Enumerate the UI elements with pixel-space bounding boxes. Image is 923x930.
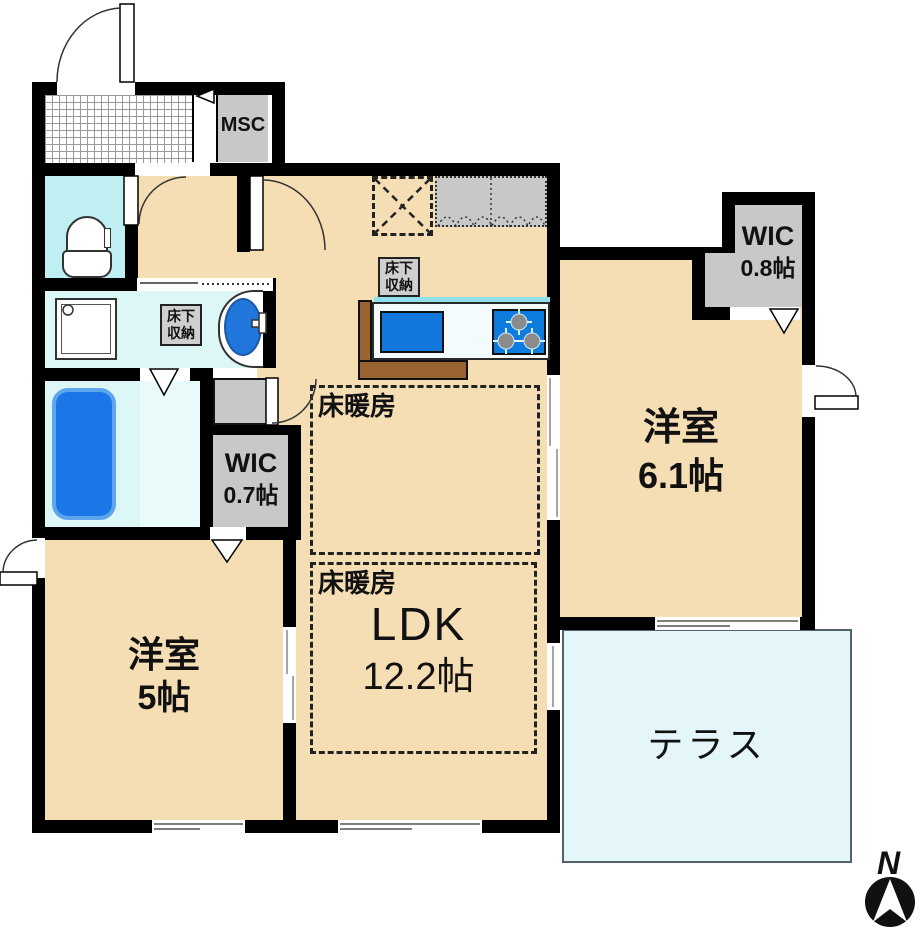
msc-label: MSC <box>221 114 265 137</box>
compass-circle <box>865 877 915 927</box>
bedroom-right-size: 6.1帖 <box>560 453 802 498</box>
wall <box>263 291 276 368</box>
wall <box>125 225 138 278</box>
ldk-south-window <box>338 820 482 833</box>
entrance-door-arc <box>57 8 120 82</box>
bedroom-left-label: 洋室 5帖 <box>45 632 283 720</box>
wic-right-size: 0.8帖 <box>718 254 818 283</box>
bedroom-ldk-sliding-door <box>283 627 296 723</box>
floor-plan: MSC <box>0 0 923 930</box>
wall <box>32 527 296 540</box>
bedroom-left-name: 洋室 <box>128 634 200 675</box>
bedroom-right-window <box>655 617 800 630</box>
right-casement-leaf <box>815 396 858 409</box>
ldk-terrace-window <box>547 643 560 710</box>
wall <box>237 176 250 252</box>
bedroom-right-name: 洋室 <box>643 407 719 449</box>
ldk-bedroom-right-sliding-door <box>547 375 560 520</box>
wic-left-size: 0.7帖 <box>201 481 301 510</box>
bathroom-door-opening <box>140 368 190 381</box>
floor-heating-label-2: 床暖房 <box>318 567 396 600</box>
wic-left-name: WIC <box>225 448 277 478</box>
washing-machine-pan-inner <box>61 304 111 354</box>
floor-heating-label-1: 床暖房 <box>318 390 396 423</box>
wall <box>200 425 300 435</box>
bathroom-drying-area <box>140 381 200 527</box>
bedroom-left-size: 5帖 <box>45 677 283 720</box>
wall <box>692 247 705 307</box>
underfloor-storage-line2: 収納 <box>167 325 195 342</box>
wall <box>272 82 285 176</box>
underfloor-storage-line2: 収納 <box>385 277 413 294</box>
hall-closet <box>213 378 268 425</box>
bedroom-left-window <box>152 820 245 833</box>
wall <box>32 82 45 833</box>
underfloor-storage-line1: 床下 <box>167 308 195 325</box>
kitchen-stove <box>492 309 546 355</box>
toilet-lever <box>104 228 111 248</box>
refrigerator-space <box>372 176 433 236</box>
entrance-tile-floor <box>45 95 192 163</box>
wic-right-door-opening <box>730 307 800 320</box>
kitchen-wall-cabinet <box>435 176 547 227</box>
wic-right-name: WIC <box>742 221 794 251</box>
terrace-label: テラス <box>562 722 852 767</box>
wall <box>285 163 560 176</box>
bedroom-right-label: 洋室 6.1帖 <box>560 405 802 498</box>
bathtub <box>52 388 116 520</box>
underfloor-storage-washroom: 床下 収納 <box>160 304 202 346</box>
kitchen-sink <box>380 311 444 353</box>
underfloor-storage-line1: 床下 <box>385 260 413 277</box>
msc-closet: MSC <box>218 88 268 162</box>
right-casement-arc <box>816 366 856 397</box>
compass: N <box>865 845 915 927</box>
compass-north-arrow <box>873 879 907 922</box>
entrance-hall-opening <box>135 163 210 176</box>
bedroom-right-casement-window <box>802 365 815 417</box>
toilet-bowl <box>62 250 112 278</box>
bedroom-left-casement-window <box>32 538 45 578</box>
ldk-name: LDK <box>371 598 466 650</box>
ldk-size: 12.2帖 <box>300 654 537 702</box>
entrance-step-strip <box>192 88 218 162</box>
counter-bar-horizontal <box>358 360 468 380</box>
closet-door-nook-floor <box>263 368 308 428</box>
wall <box>692 307 730 320</box>
compass-north-label: N <box>877 845 901 881</box>
entrance-door-leaf <box>120 4 134 82</box>
ldk-label: LDK 12.2帖 <box>300 596 537 701</box>
vanity-basin <box>224 298 262 356</box>
bedroom-left-door-opening <box>210 527 246 540</box>
entrance-door-opening <box>57 82 135 95</box>
wic-right-label: WIC 0.8帖 <box>718 220 818 283</box>
wic-left-label: WIC 0.7帖 <box>201 447 301 510</box>
underfloor-storage-kitchen: 床下 収納 <box>378 257 420 297</box>
wall <box>560 247 692 260</box>
